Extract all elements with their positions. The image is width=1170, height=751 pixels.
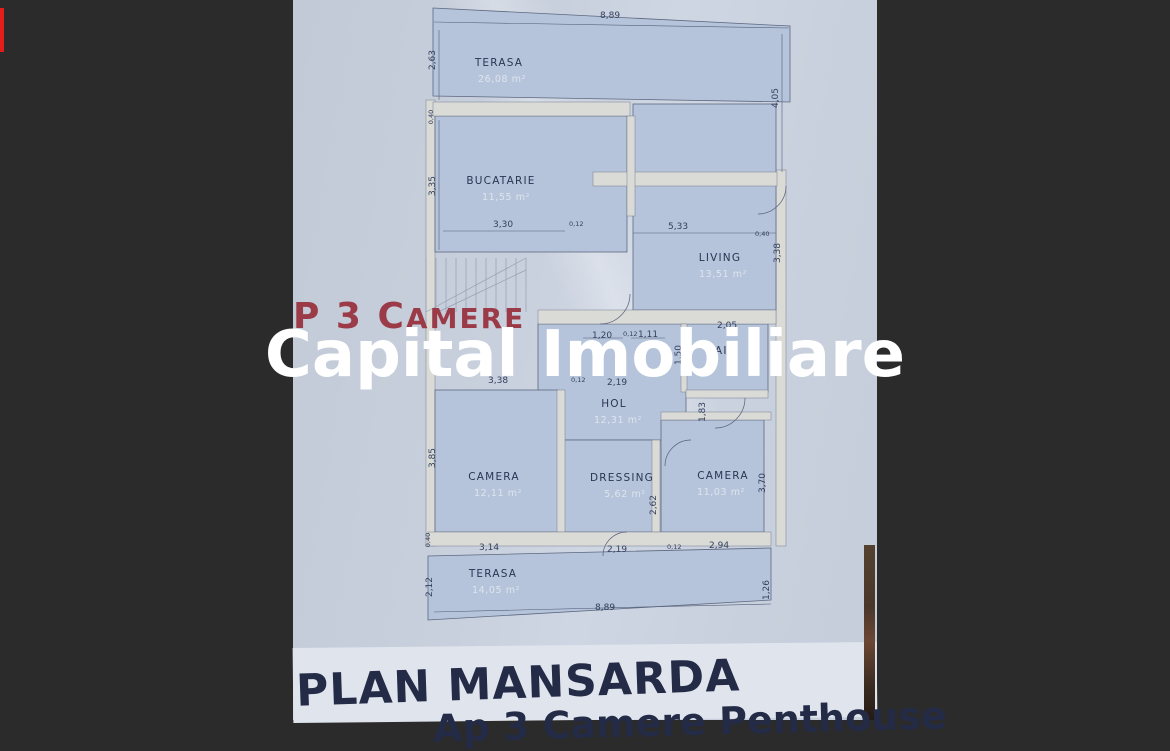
dim-label: 3,85 xyxy=(428,448,438,468)
room-label-dressing: DRESSING xyxy=(590,472,654,484)
dim-label: 8,89 xyxy=(595,603,615,613)
room-label-terasa-top: TERASA xyxy=(474,57,523,69)
dim-label: 0,40 xyxy=(427,110,435,124)
dim-label: 3,30 xyxy=(493,220,513,230)
dim-label: 2,19 xyxy=(607,545,627,555)
room-label-terasa-bottom: TERASA xyxy=(468,568,517,580)
dim-label: 3,35 xyxy=(428,176,438,196)
room-area-camera-right: 11,03 m² xyxy=(697,487,745,498)
dim-label: 0,12 xyxy=(667,543,681,551)
room-label-bucatarie: BUCATARIE xyxy=(466,175,535,187)
room-terasa-top xyxy=(433,8,790,102)
dim-label: 0,40 xyxy=(755,230,769,238)
room-dressing xyxy=(563,440,653,532)
room-area-terasa-bottom: 14,05 m² xyxy=(472,585,520,596)
dim-label: 4,05 xyxy=(771,88,781,108)
photo-wood-edge xyxy=(864,545,875,720)
dim-label: 2,62 xyxy=(649,495,659,515)
dim-label: 8,89 xyxy=(600,11,620,21)
wall-camera-right-top xyxy=(661,412,771,420)
room-label-camera-left: CAMERA xyxy=(468,471,519,483)
dim-label: 2,94 xyxy=(709,541,729,551)
dim-label: 0,40 xyxy=(424,533,432,547)
wall-bucatarie-living xyxy=(627,116,635,216)
dim-label: 2,12 xyxy=(425,577,435,597)
dim-label: 3,38 xyxy=(773,243,783,263)
dim-label: 3,14 xyxy=(479,543,499,553)
photo-viewer: { "background": { "color": "#2b2b2b", "r… xyxy=(0,0,1170,720)
room-area-hol: 12,31 m² xyxy=(594,415,642,426)
dim-label: 0,12 xyxy=(569,220,583,228)
dim-label: 1,83 xyxy=(698,402,708,422)
dim-label: 1,26 xyxy=(762,580,772,600)
room-area-dressing: 5,62 m² xyxy=(604,489,645,500)
dim-label: 5,33 xyxy=(668,222,688,232)
room-label-camera-right: CAMERA xyxy=(697,470,748,482)
room-area-living: 13,51 m² xyxy=(699,269,747,280)
watermark: Capital Imobiliare xyxy=(0,318,1170,392)
room-label-living: LIVING xyxy=(699,252,741,264)
dim-label: 2,63 xyxy=(428,50,438,70)
wall-hol-camera xyxy=(557,390,565,532)
wall-terrace-bottom xyxy=(433,102,630,116)
room-area-bucatarie: 11,55 m² xyxy=(482,192,530,203)
viewer-accent-bar xyxy=(0,8,4,52)
wall-dressing-camera xyxy=(652,440,660,532)
room-label-hol: HOL xyxy=(601,398,627,410)
room-camera-left xyxy=(435,390,558,532)
room-area-camera-left: 12,11 m² xyxy=(474,488,522,499)
room-area-terasa-top: 26,08 m² xyxy=(478,74,526,85)
dim-label: 3,70 xyxy=(758,473,768,493)
wall-living-top xyxy=(593,172,777,186)
